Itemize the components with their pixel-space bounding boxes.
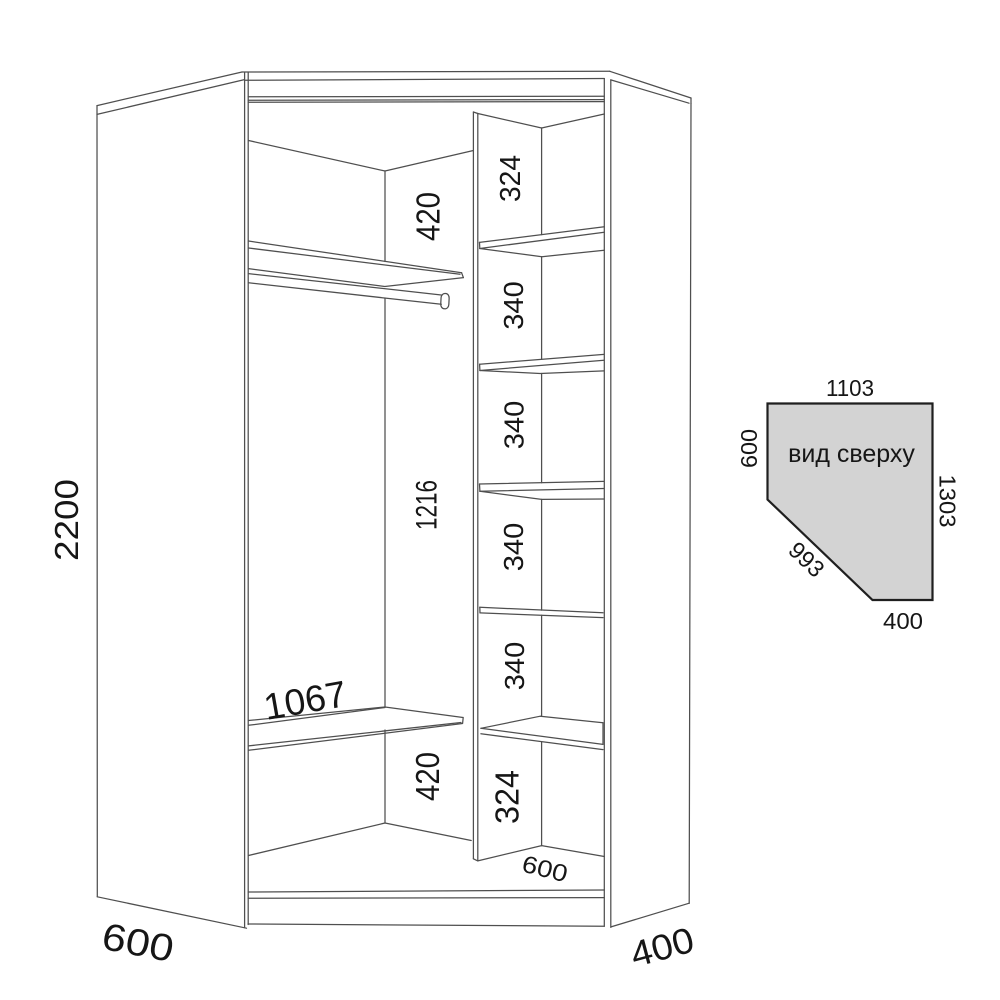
svg-text:1103: 1103 [826,375,874,401]
svg-text:600: 600 [736,429,762,468]
svg-text:600: 600 [98,916,177,971]
svg-text:400: 400 [626,919,698,975]
svg-text:400: 400 [883,608,923,634]
svg-text:600: 600 [519,851,570,888]
svg-text:324: 324 [489,770,526,824]
svg-text:1216: 1216 [411,480,444,530]
svg-text:324: 324 [495,155,527,202]
svg-text:340: 340 [499,401,530,450]
svg-text:420: 420 [409,752,446,801]
svg-text:1067: 1067 [261,673,350,728]
svg-text:1303: 1303 [935,475,961,528]
svg-text:340: 340 [498,281,529,330]
svg-text:340: 340 [498,523,529,572]
svg-text:420: 420 [410,192,447,241]
svg-text:340: 340 [499,642,530,691]
svg-text:вид сверху: вид сверху [788,440,915,468]
svg-text:2200: 2200 [49,479,86,561]
